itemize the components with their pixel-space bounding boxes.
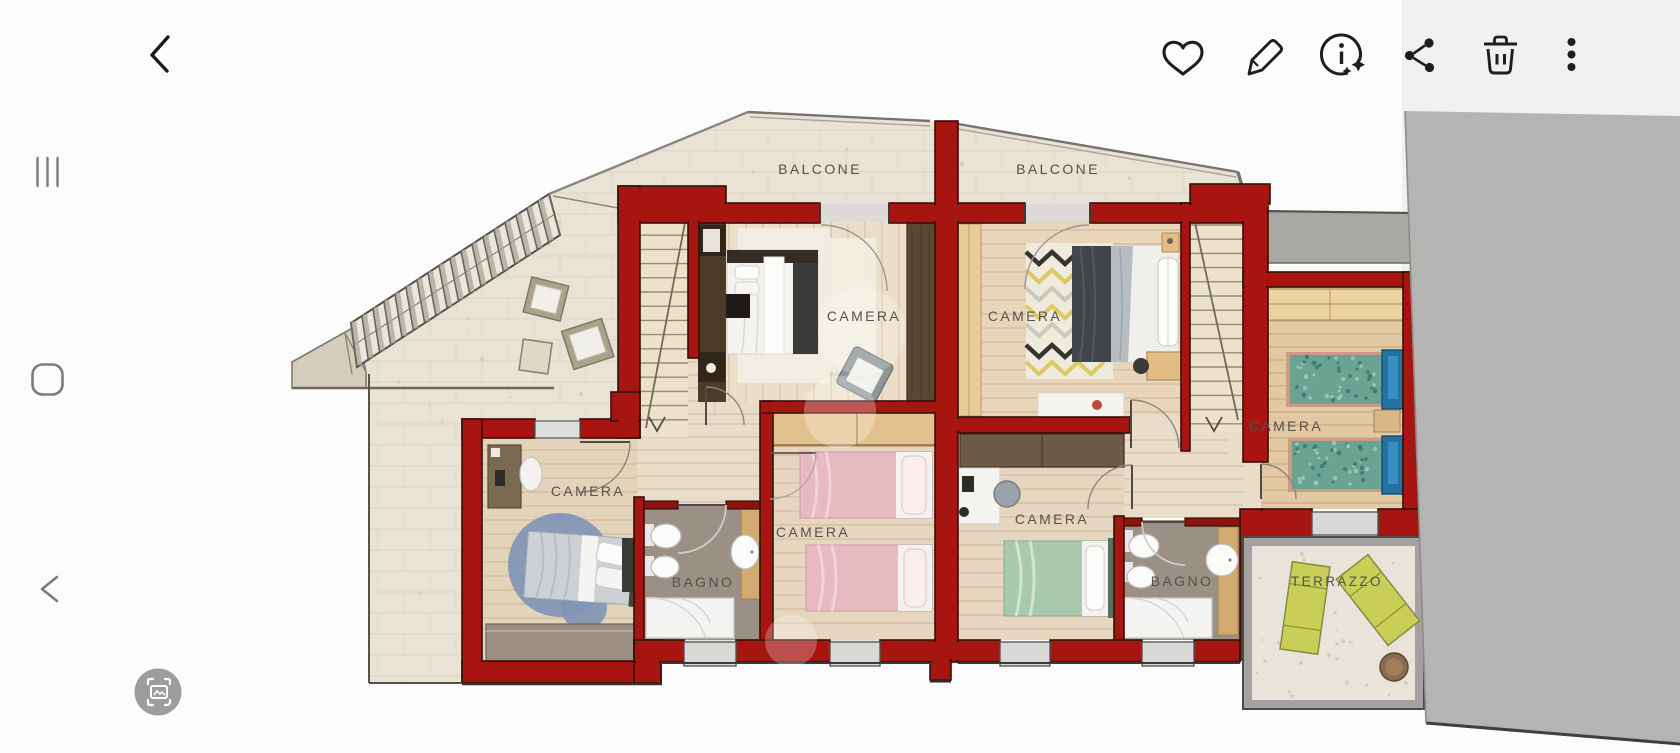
svg-text:CAMERA: CAMERA xyxy=(551,483,625,499)
svg-text:BALCONE: BALCONE xyxy=(1016,161,1100,177)
svg-text:CAMERA: CAMERA xyxy=(827,308,901,324)
svg-text:CAMERA: CAMERA xyxy=(776,524,850,540)
svg-text:TERRAZZO: TERRAZZO xyxy=(1291,574,1383,589)
svg-text:BAGNO: BAGNO xyxy=(1151,573,1214,589)
svg-text:BAGNO: BAGNO xyxy=(672,574,735,590)
svg-text:CAMERA: CAMERA xyxy=(988,308,1062,324)
svg-text:CAMERA: CAMERA xyxy=(1015,511,1089,527)
svg-text:CAMERA: CAMERA xyxy=(1249,418,1323,434)
svg-text:BALCONE: BALCONE xyxy=(778,161,862,177)
